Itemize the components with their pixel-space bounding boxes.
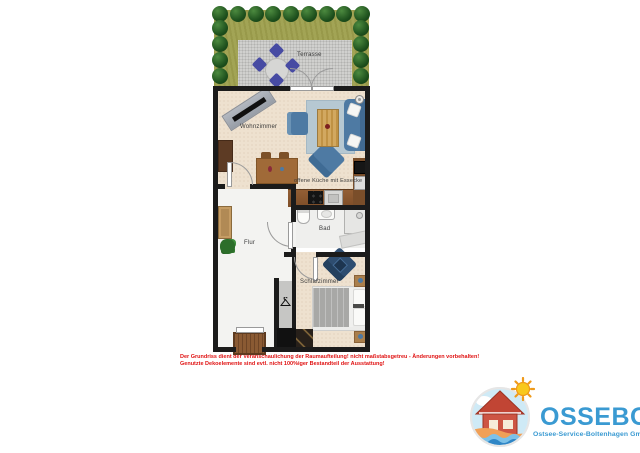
bush-icon [212,36,228,52]
wall-block [277,328,296,347]
room-label-terrasse: Terrasse [297,52,322,58]
cooktop [308,191,323,204]
toilet [297,209,310,224]
dining-table [256,158,298,184]
bush-icon [283,6,299,22]
company-logo: OSSEBO Ostsee-Service-Boltenhagen GmbH [467,375,640,453]
bedroom-door-leaf [313,257,318,281]
hall-cabinet [218,206,232,239]
sun-icon [512,378,534,400]
decor-item [268,166,272,172]
wall [316,252,370,257]
bush-icon [230,6,246,22]
logo-subtitle: Ostsee-Service-Boltenhagen GmbH [533,431,640,438]
armchair [287,112,308,135]
wall [296,205,370,210]
disclaimer-line2: Genutzte Dekoelemente sind evtl. nicht 1… [180,361,600,368]
shower-drain [356,212,363,219]
bush-icon [353,20,369,36]
bush-icon [353,36,369,52]
terrace-door-leaf [312,86,334,91]
headboard-gap [353,304,364,308]
wall [213,86,290,91]
bush-icon [353,68,369,84]
logo-wordmark: OSSEBO [540,403,640,432]
decor-item [325,124,330,129]
bush-icon [212,52,228,68]
decor-item [280,167,284,171]
room-label-kueche: offene Küche mit Essecke [294,178,362,184]
room-label-bad: Bad [319,226,330,232]
wall [213,86,218,352]
bush-icon [319,6,335,22]
wall [365,86,370,352]
bush-icon [248,6,264,22]
bush-icon [336,6,352,22]
bush-icon [212,68,228,84]
plant-icon [220,239,235,254]
hedge-top [212,6,370,23]
room-label-wohnzimmer: Wohnzimmer [240,124,277,130]
ceiling-lamp-icon [355,95,364,104]
wall [213,347,236,352]
bush-icon [301,6,317,22]
room-label-schlafzimmer: Schlafzimmer [300,279,339,285]
terrace-door-leaf [290,86,312,91]
bush-icon [353,52,369,68]
hedge-right [353,20,369,82]
living-door-leaf [227,162,232,187]
room-label-flur: Flur [244,240,255,246]
disclaimer-line1: Der Grundriss dient der Veranschaulichun… [180,354,600,361]
hanger-icon [280,297,291,309]
disclaimer: Der Grundriss dient der Veranschaulichun… [180,354,600,368]
bed-duvet [313,288,349,327]
wall [291,184,296,222]
bedroom-wardrobe [296,329,313,347]
entry-door-leaf [236,327,264,333]
wall [213,184,225,189]
logo-emblem [469,377,539,451]
bush-icon [265,6,281,22]
bath-door-leaf [288,222,293,249]
wall [250,184,296,189]
bush-icon [212,20,228,36]
hedge-left [212,20,228,82]
